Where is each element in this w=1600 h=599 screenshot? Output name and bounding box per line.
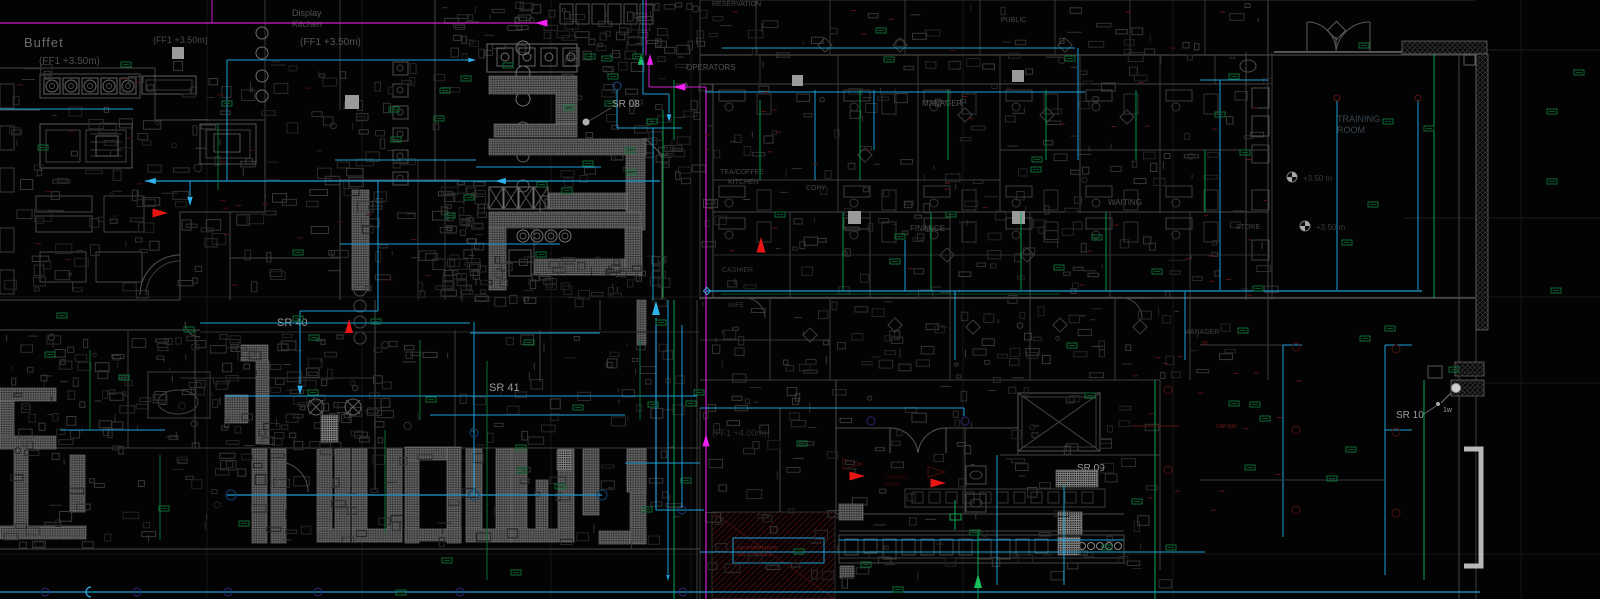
svg-text:ROOM: ROOM — [1337, 125, 1365, 135]
svg-text:SR 08: SR 08 — [612, 99, 640, 110]
svg-text:SR 10: SR 10 — [1396, 410, 1424, 421]
svg-text:TRAINING: TRAINING — [1337, 114, 1380, 124]
svg-text:+3.50 m: +3.50 m — [1316, 223, 1345, 232]
svg-text:EQUIPMENT NOTE: EQUIPMENT NOTE — [737, 545, 777, 550]
svg-text:KITCHEN: KITCHEN — [728, 179, 759, 186]
svg-text:WAITING: WAITING — [1108, 198, 1142, 207]
svg-text:CAP 600: CAP 600 — [1216, 424, 1236, 430]
svg-text:(FF1 +3.50m): (FF1 +3.50m) — [39, 56, 100, 67]
svg-text:Kitchen: Kitchen — [292, 19, 322, 29]
svg-text:SAFE: SAFE — [728, 303, 744, 309]
svg-text:CASHIER: CASHIER — [722, 267, 753, 274]
svg-text:ROOM: ROOM — [884, 482, 900, 488]
svg-text:MANAGER: MANAGER — [1184, 329, 1219, 336]
svg-text:(FF1 +3.50m): (FF1 +3.50m) — [153, 35, 208, 45]
svg-text:OPERATORS: OPERATORS — [686, 63, 736, 72]
svg-text:(FF1 +4.00m): (FF1 +4.00m) — [712, 428, 767, 438]
svg-text:+3.50 m: +3.50 m — [1303, 174, 1332, 183]
svg-text:PUBLIC: PUBLIC — [1001, 17, 1026, 24]
svg-text:1w: 1w — [1443, 407, 1453, 414]
svg-text:RESERVATION: RESERVATION — [712, 1, 761, 8]
svg-text:Buffet: Buffet — [24, 35, 64, 50]
svg-text:STORE: STORE — [1236, 224, 1260, 231]
svg-text:COPY: COPY — [806, 185, 826, 192]
svg-text:Display: Display — [292, 8, 322, 18]
svg-text:FINANCE: FINANCE — [910, 224, 945, 233]
svg-text:CONTROL: CONTROL — [884, 475, 909, 481]
svg-text:MANAGER: MANAGER — [922, 99, 963, 108]
svg-text:(FF1 +3.50m): (FF1 +3.50m) — [300, 37, 361, 48]
svg-text:TEA/COFFEE: TEA/COFFEE — [720, 169, 764, 176]
